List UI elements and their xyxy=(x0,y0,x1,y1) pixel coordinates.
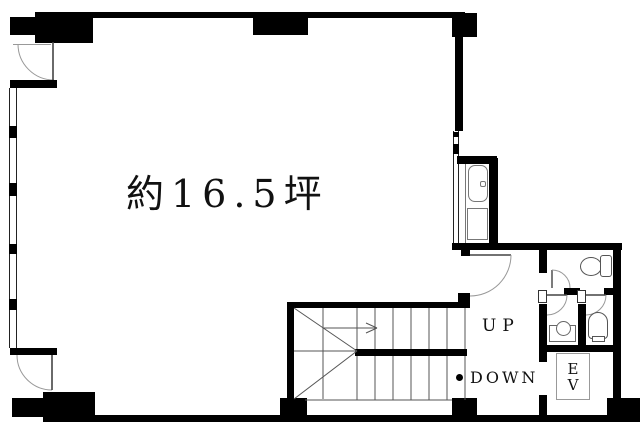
alcove-edge-line xyxy=(465,164,466,243)
elevator-label-line2: V xyxy=(568,377,579,393)
middle-wall xyxy=(452,243,622,250)
right-window-mullion xyxy=(453,144,459,154)
elevator-north-wall xyxy=(539,345,621,352)
entrance-door xyxy=(14,40,60,84)
elevator-label-line1: E xyxy=(568,361,579,377)
counter-fixture xyxy=(467,208,488,240)
left-window-mullion xyxy=(9,126,17,138)
top-wall xyxy=(35,12,465,18)
right-window-mullion xyxy=(453,132,459,137)
toilet2-base-icon xyxy=(592,336,605,342)
floor-plan: E V 約16.5坪 UP DOWN xyxy=(0,0,640,435)
washbasin-bowl-icon xyxy=(556,321,571,336)
main-room-door xyxy=(468,251,514,299)
elevator-box: E V xyxy=(556,353,590,400)
hall-east-wall-upper xyxy=(539,243,547,273)
right-upper-wall xyxy=(455,35,463,131)
toilet2-bowl-icon xyxy=(588,312,608,339)
left-wall-stub-upper xyxy=(10,80,57,88)
left-window-mullion xyxy=(9,183,17,196)
hall-east-wall-lower xyxy=(539,395,547,418)
top-middle-pillar xyxy=(253,12,308,35)
toilet-tank-icon xyxy=(600,255,612,277)
washroom-door xyxy=(546,293,570,317)
bottom-right-pillar xyxy=(607,398,640,418)
down-label: DOWN xyxy=(470,368,538,387)
alcove-right-wall xyxy=(489,158,498,250)
toilet1-door xyxy=(549,266,573,290)
right-wall xyxy=(613,250,621,422)
staircase xyxy=(280,295,480,420)
bottom-left-door xyxy=(12,353,56,393)
top-left-wall-stub xyxy=(10,17,35,35)
left-window-mullion xyxy=(9,299,17,310)
toilet-bowl-icon xyxy=(580,257,602,276)
top-right-pillar xyxy=(452,13,477,37)
top-left-pillar xyxy=(35,12,93,43)
left-window-mullion xyxy=(9,244,17,254)
down-start-dot xyxy=(456,374,463,381)
faucet-icon xyxy=(480,181,486,187)
area-label: 約16.5坪 xyxy=(126,163,329,218)
up-label: UP xyxy=(482,316,520,336)
